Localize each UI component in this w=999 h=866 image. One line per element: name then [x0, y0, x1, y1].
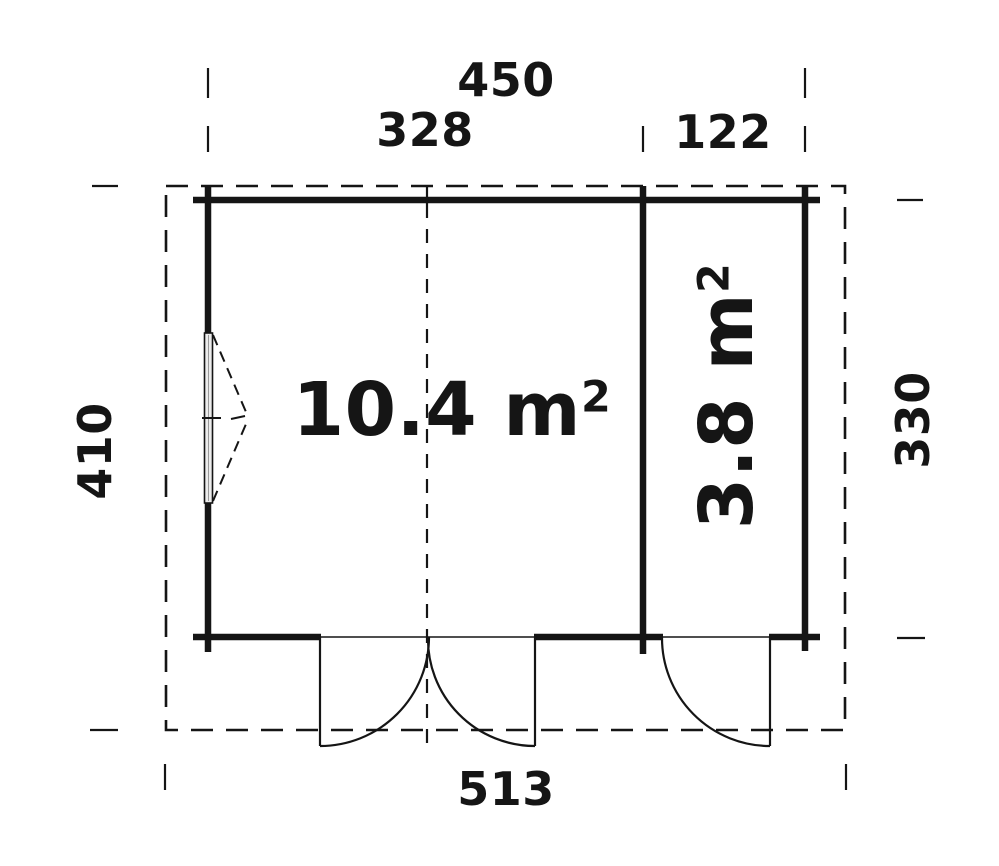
dimension-right-wall-depth: 330 [890, 371, 936, 469]
room1-area-exponent: 2 [581, 372, 611, 422]
dimension-left-overall-depth-text: 410 [68, 402, 122, 500]
dimension-bottom-overall-width: 513 [457, 766, 555, 812]
dimension-top-total-width: 450 [457, 57, 555, 103]
dimension-right-wall-depth-text: 330 [886, 371, 940, 469]
room1-area-label: 10.4 m2 [293, 373, 612, 447]
floor-plan-canvas: 450 328 122 410 330 513 10.4 m2 3.8 m2 [0, 0, 999, 866]
window-swing-apex-dash [231, 416, 245, 419]
room2-area-value: 3.8 m [684, 293, 770, 529]
dimension-top-room2-width: 122 [674, 109, 772, 155]
dimension-top-room1-width: 328 [376, 107, 474, 153]
room2-area-label: 3.8 m2 [690, 263, 764, 530]
room2-area-exponent: 2 [689, 263, 739, 293]
dimension-top-total-width-text: 450 [457, 53, 555, 107]
window-swing-upper-dashed [213, 335, 246, 412]
window-swing-lower-dashed [213, 424, 246, 501]
dimension-top-room2-width-text: 122 [674, 105, 772, 159]
dimension-left-overall-depth: 410 [72, 402, 118, 500]
room1-area-value: 10.4 m [293, 367, 581, 453]
dimension-top-room1-width-text: 328 [376, 103, 474, 157]
dimension-bottom-overall-width-text: 513 [457, 762, 555, 816]
